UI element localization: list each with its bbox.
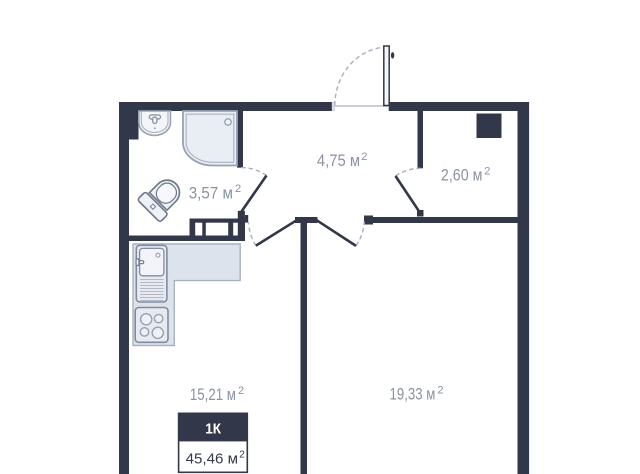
svg-text:15,21 м: 15,21 м bbox=[190, 385, 236, 404]
svg-text:4,75 м: 4,75 м bbox=[317, 151, 360, 170]
svg-text:19,33 м: 19,33 м bbox=[390, 384, 436, 403]
svg-text:2: 2 bbox=[235, 183, 241, 195]
svg-text:2: 2 bbox=[361, 151, 367, 163]
svg-text:2: 2 bbox=[437, 385, 443, 397]
svg-text:1К: 1К bbox=[205, 421, 222, 438]
svg-text:2: 2 bbox=[238, 385, 244, 397]
svg-text:3,57 м: 3,57 м bbox=[189, 183, 233, 202]
svg-text:2: 2 bbox=[239, 450, 245, 461]
svg-text:2,60 м: 2,60 м bbox=[441, 165, 483, 184]
svg-text:45,46 м: 45,46 м bbox=[186, 450, 238, 467]
svg-text:2: 2 bbox=[484, 166, 490, 178]
